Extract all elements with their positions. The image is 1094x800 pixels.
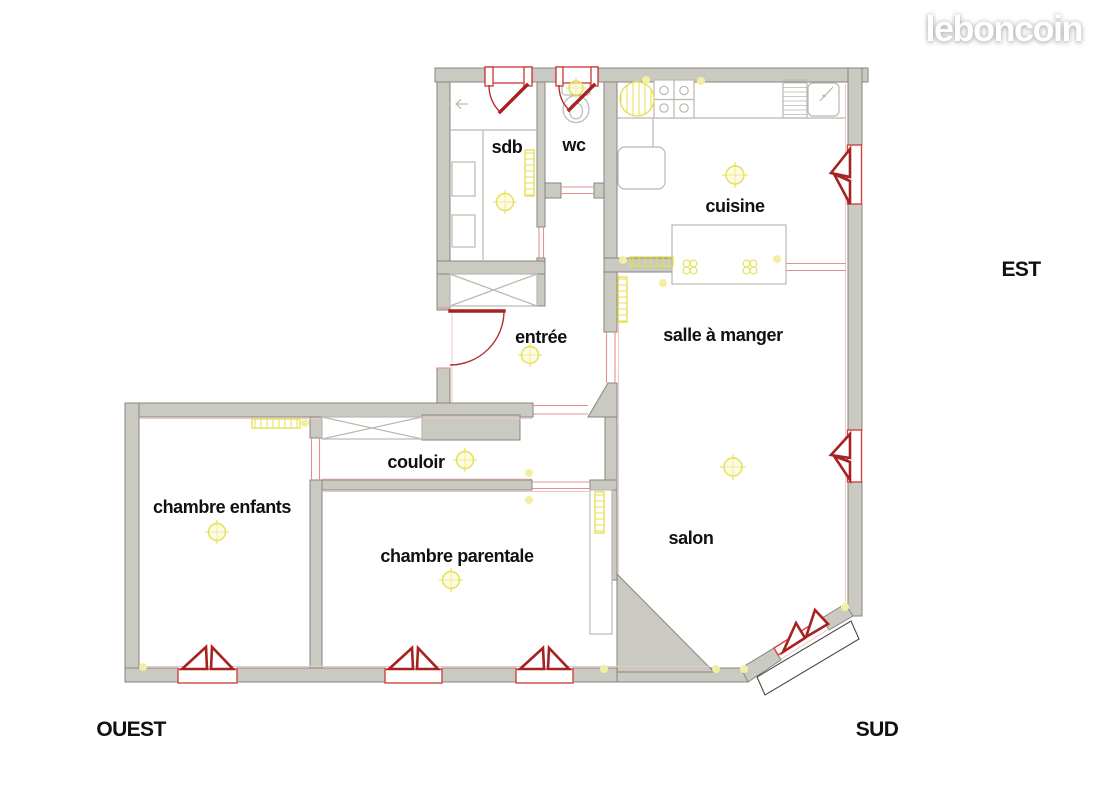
dining-table (672, 225, 786, 284)
ceiling-light-icon (720, 454, 746, 480)
door-opening-parentale (532, 482, 590, 489)
wall-light-icon (600, 665, 608, 673)
wall-light-icon (525, 469, 533, 477)
wall-lights-group (139, 76, 849, 673)
arrow-left-icon (456, 100, 468, 109)
window-icon (485, 67, 532, 112)
window-icon (774, 610, 828, 655)
door-opening-salle-a-manger (607, 332, 616, 383)
fridge-icon (618, 147, 665, 189)
wall-light-icon (642, 76, 650, 84)
wall-light-icon (697, 77, 705, 85)
walls (125, 68, 868, 682)
window-icon (516, 648, 573, 683)
wall-light-icon (740, 665, 748, 673)
door-opening-sdb (539, 227, 544, 258)
wall-light-icon (301, 419, 309, 427)
window-icon (831, 430, 862, 482)
room-label-wc: wc (561, 135, 586, 155)
wall-light-icon (841, 603, 849, 611)
room-label-salle-a-manger: salle à manger (663, 325, 783, 345)
compass-ouest: OUEST (96, 718, 166, 741)
door-opening-wc (561, 187, 594, 194)
stove-icon (654, 80, 694, 118)
compass-est: EST (1001, 258, 1041, 281)
wall-light-icon (139, 663, 147, 671)
door-opening-enfants (312, 438, 320, 480)
wall-light-icon (659, 279, 667, 287)
room-labels: sdb wc cuisine entrée salle à manger cou… (153, 135, 783, 566)
ceiling-light-icon (205, 520, 229, 544)
ceiling-light-icon (453, 448, 477, 472)
door-icon (437, 308, 504, 368)
room-label-chambre-enfants: chambre enfants (153, 497, 291, 517)
window-icon (178, 647, 237, 683)
floor-plan: sdb wc cuisine entrée salle à manger cou… (0, 0, 1094, 800)
ceiling-light-icon (722, 162, 748, 188)
washer-icon (452, 162, 475, 247)
closet-icon (450, 274, 537, 306)
room-label-sdb: sdb (492, 137, 523, 157)
wall-light-icon (773, 255, 781, 263)
floor-plan-page: leboncoin (0, 0, 1094, 800)
wall-light-icon (525, 496, 533, 504)
room-label-cuisine: cuisine (705, 196, 765, 216)
ceiling-light-icon (439, 568, 463, 592)
door-opening-entree-hall (533, 406, 588, 415)
room-label-salon: salon (668, 528, 713, 548)
ceiling-light-icon (493, 190, 517, 214)
room-label-couloir: couloir (387, 452, 445, 472)
sink-icon (783, 80, 839, 118)
wall-light-icon (619, 256, 627, 264)
wall-light-icon (712, 665, 720, 673)
room-label-chambre-parentale: chambre parentale (380, 546, 534, 566)
window-icon (385, 648, 442, 683)
window-icon (831, 145, 862, 204)
compass-sud: SUD (856, 718, 899, 741)
closet-icon (322, 417, 422, 439)
round-table-icon (620, 82, 654, 116)
room-label-entree: entrée (515, 327, 567, 347)
